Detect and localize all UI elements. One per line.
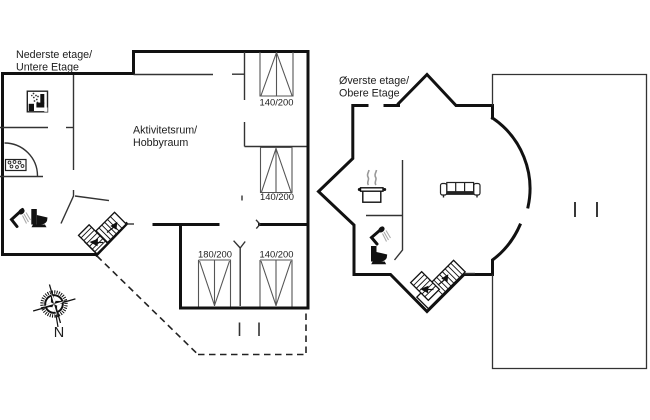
svg-text:Hobbyraum: Hobbyraum	[133, 137, 188, 149]
svg-text:Øverste etage/: Øverste etage/	[339, 75, 409, 87]
svg-text:140/200: 140/200	[260, 97, 294, 108]
svg-text:Untere Etage: Untere Etage	[16, 62, 79, 74]
svg-text:N: N	[54, 325, 64, 341]
svg-text:140/200: 140/200	[260, 191, 294, 202]
svg-text:Nederste etage/: Nederste etage/	[16, 49, 92, 61]
svg-text:140/200: 140/200	[260, 249, 294, 260]
svg-text:180/200: 180/200	[198, 249, 232, 260]
svg-text:Aktivitetsrum/: Aktivitetsrum/	[133, 125, 197, 137]
svg-text:Obere Etage: Obere Etage	[339, 88, 400, 100]
